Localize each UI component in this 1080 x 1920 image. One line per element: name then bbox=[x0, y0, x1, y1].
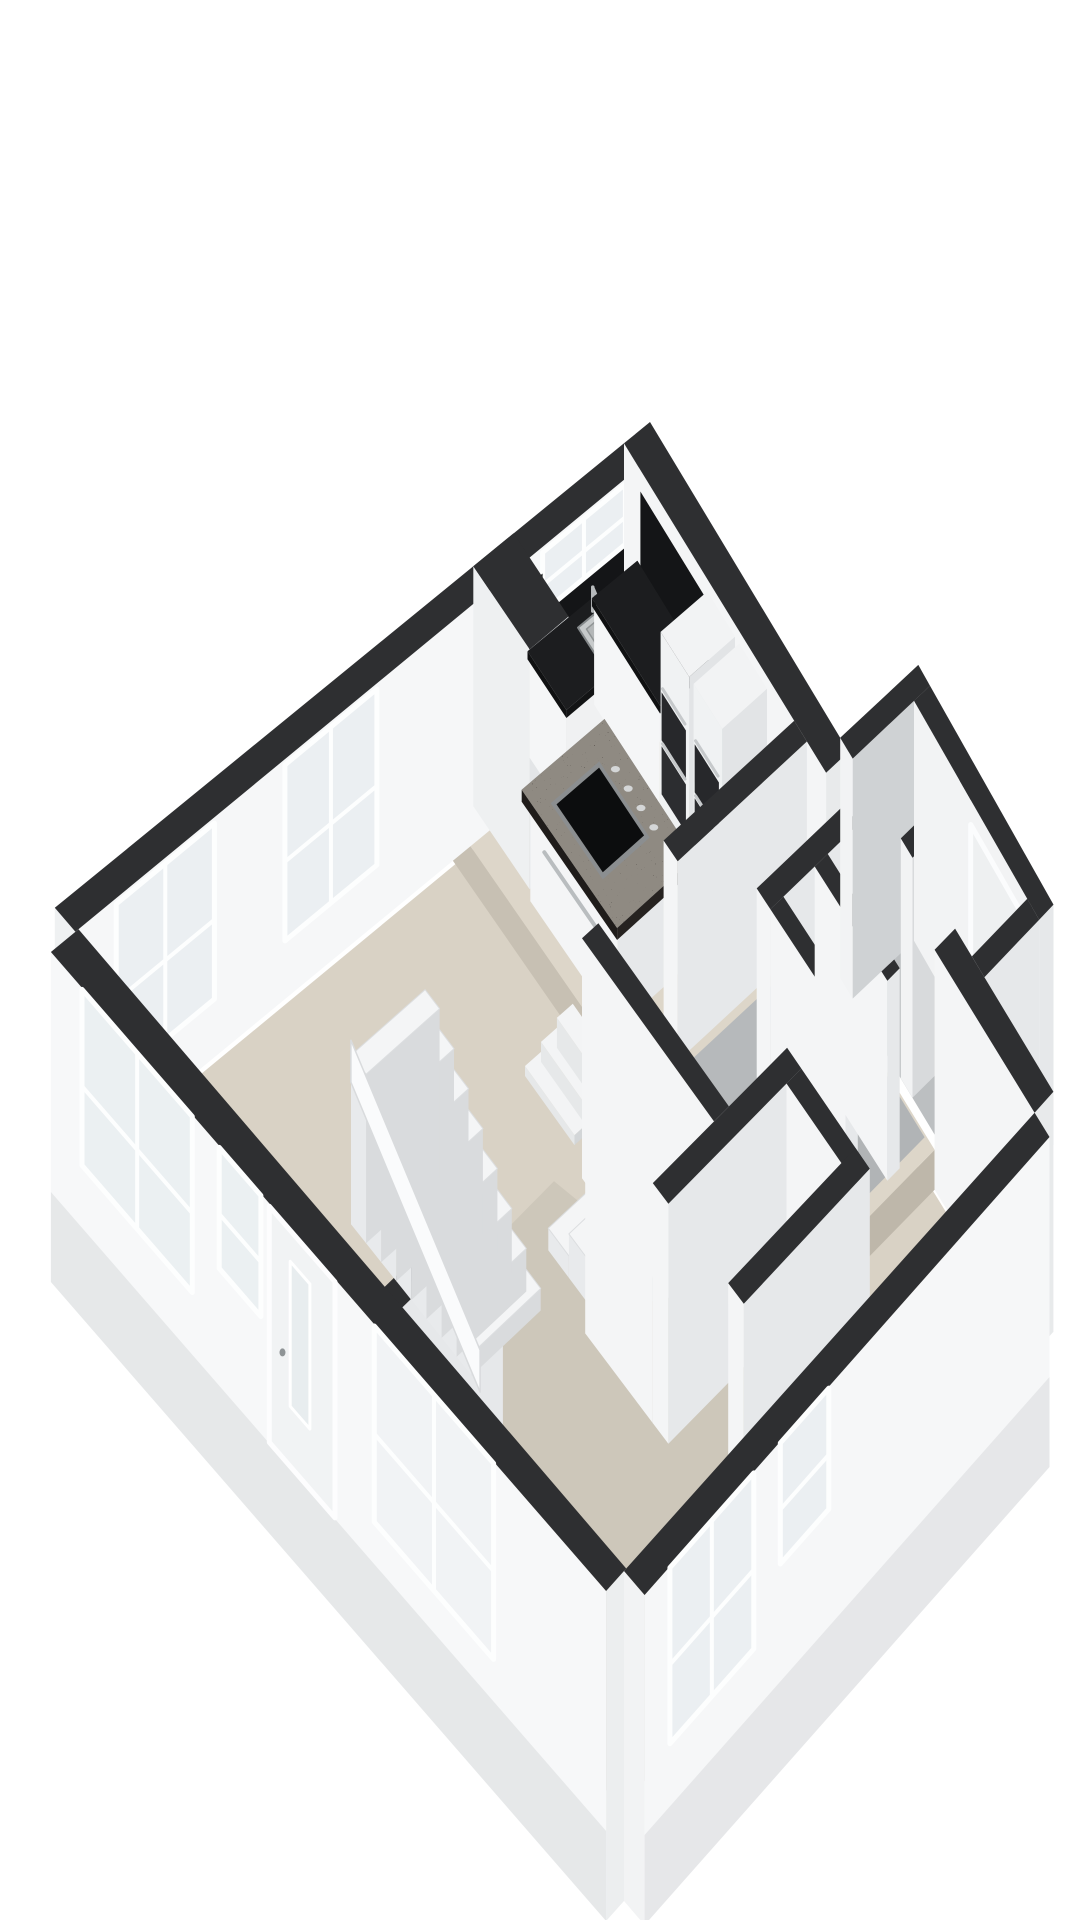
annex-wall-north-face-left bbox=[840, 738, 853, 999]
cooktop-knob-2-dot bbox=[624, 785, 633, 791]
cooktop-knob-3 bbox=[636, 805, 645, 811]
meter-cupboard-wall-face-left bbox=[901, 838, 913, 1097]
cooktop-knob-2 bbox=[624, 785, 633, 791]
interior-wall-rooms-divider-face-right bbox=[887, 968, 899, 1181]
cooktop-knob-4-dot bbox=[649, 824, 658, 830]
cooktop-knob-1 bbox=[611, 766, 620, 772]
facade-sw-face-right bbox=[606, 1569, 626, 1920]
floorplan-stage bbox=[0, 0, 1080, 1920]
facade-se-face-left bbox=[624, 1571, 645, 1920]
front-door-pane-shape bbox=[290, 1261, 310, 1429]
front-door-handle-dot bbox=[279, 1348, 285, 1356]
cooktop-knob-3-dot bbox=[636, 805, 645, 811]
front-door-pane bbox=[290, 1261, 310, 1429]
winder-wall-south-face-left bbox=[653, 1183, 669, 1444]
cooktop-knob-4 bbox=[649, 824, 658, 830]
floor-plan-3d bbox=[0, 0, 1080, 1920]
front-door-handle bbox=[279, 1348, 285, 1356]
cooktop-knob-1-dot bbox=[611, 766, 620, 772]
